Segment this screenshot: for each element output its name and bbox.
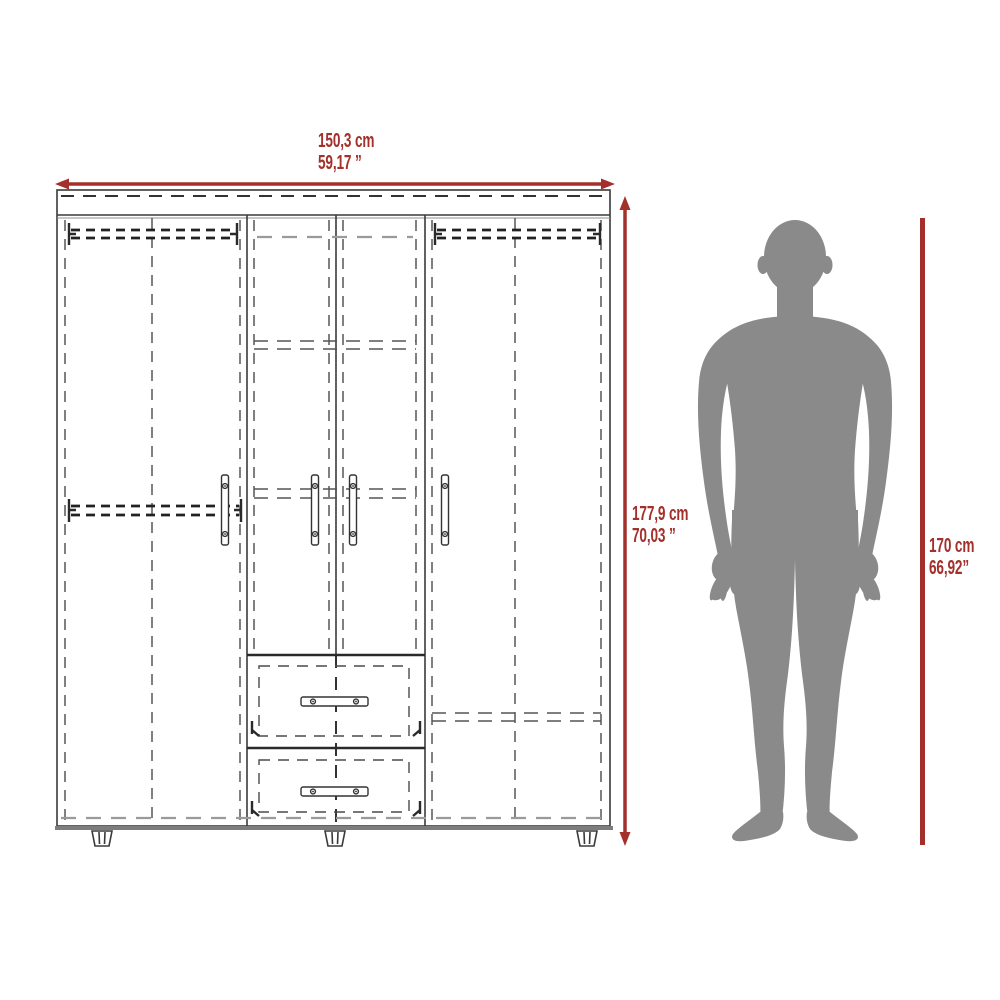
section-dividers: [247, 215, 425, 826]
wardrobe-height-label: 177,9 cm 70,03 ”: [632, 503, 688, 547]
wardrobe-height-cm: 177,9 cm: [632, 503, 688, 525]
person-height-label: 170 cm 66,92”: [929, 535, 974, 579]
silhouette-foot-left: [732, 812, 783, 841]
arrowhead-left: [55, 179, 69, 190]
cabinet-foot: [325, 831, 345, 846]
wardrobe-width-label: 150,3 cm 59,17 ”: [318, 130, 374, 174]
door-gap-lines: [65, 218, 601, 822]
wardrobe-width-inches: 59,17 ”: [318, 152, 374, 174]
wardrobe-width-cm: 150,3 cm: [318, 130, 374, 152]
silhouette-torso: [718, 316, 872, 532]
door-handle: [350, 475, 357, 545]
cabinet-outline: [57, 190, 610, 826]
cabinet-foot: [92, 831, 112, 846]
door-handle: [222, 475, 229, 545]
arrowhead-up: [620, 196, 631, 210]
drawer-2: [247, 748, 425, 816]
door-handle: [312, 475, 319, 545]
silhouette-body: [698, 220, 892, 841]
hanging-rod-top-right: [435, 223, 600, 245]
door-handle: [442, 475, 449, 545]
arrowhead-right: [601, 179, 615, 190]
middle-shelf-upper: [254, 341, 416, 349]
arrowhead-down: [620, 832, 631, 846]
door-handles: [222, 475, 449, 545]
middle-shelf-lower: [254, 489, 416, 498]
hanging-rod-top-left: [69, 223, 237, 245]
dimension-diagram: 150,3 cm 59,17 ” 177,9 cm 70,03 ”: [0, 0, 1000, 1000]
height-dimension-arrow: [617, 193, 633, 849]
hanging-rod-left-lower: [69, 499, 241, 522]
width-dimension-arrow: [52, 176, 618, 192]
cabinet-foot: [577, 831, 597, 846]
silhouette-leg-left: [731, 520, 795, 818]
wardrobe-height-inches: 70,03 ”: [632, 525, 688, 547]
wardrobe-line-drawing: [55, 188, 613, 854]
right-shelf: [432, 713, 601, 721]
human-silhouette: [688, 220, 902, 845]
person-height-cm: 170 cm: [929, 535, 974, 557]
cabinet-base: [55, 818, 613, 846]
person-height-line: [920, 218, 925, 845]
person-height-inches: 66,92”: [929, 557, 974, 579]
silhouette-foot-right: [807, 812, 858, 841]
silhouette-leg-right: [795, 520, 859, 818]
